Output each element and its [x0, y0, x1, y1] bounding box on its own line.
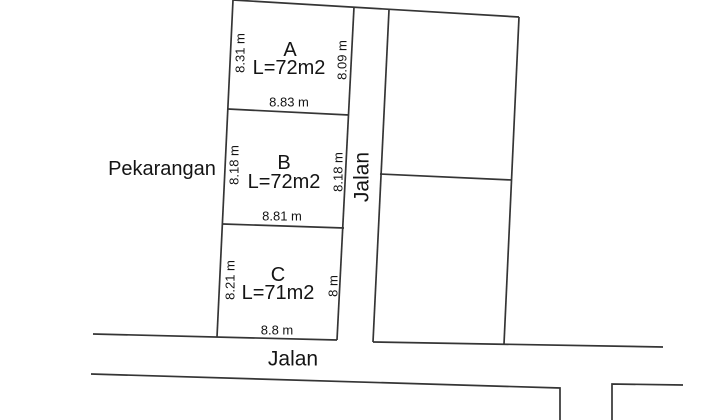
plot-b-dim-left: 8.18 m [228, 145, 241, 185]
plot-b-dim-bottom: 8.81 m [262, 210, 302, 223]
road-lower-edge [91, 374, 560, 420]
side-road-corner [612, 384, 683, 420]
plot-a-dim-bottom: 8.83 m [269, 96, 309, 109]
road-upper-edge-left [93, 334, 337, 340]
site-plan: Pekarangan A L=72m2 8.31 m 8.09 m 8.83 m… [0, 0, 720, 420]
plan-drawing [0, 0, 720, 420]
plot-b-name: B [277, 153, 290, 173]
zone-label-pekarangan: Pekarangan [108, 159, 216, 179]
plot-c-dim-bottom: 8.8 m [261, 324, 294, 337]
divider-plot-a-b [228, 109, 349, 115]
plot-a-area: L=72m2 [253, 58, 326, 78]
plot-c-dim-left: 8.21 m [224, 260, 237, 300]
plot-b-area: L=72m2 [248, 172, 321, 192]
road-label-bottom: Jalan [268, 349, 318, 370]
divider-plot-b-c [223, 224, 344, 228]
plot-c-area: L=71m2 [242, 283, 315, 303]
road-upper-edge-right [373, 342, 663, 347]
plot-a-dim-left: 8.31 m [234, 33, 247, 73]
boundary-top-line [233, 0, 519, 17]
road-label-vertical: Jalan [352, 152, 373, 202]
plot-c-dim-right: 8 m [327, 275, 340, 297]
right-parcel-divider [380, 174, 512, 180]
vertical-road-right-edge [373, 10, 389, 342]
plot-a-dim-right: 8.09 m [336, 40, 349, 80]
plot-b-dim-right: 8.18 m [332, 152, 345, 192]
